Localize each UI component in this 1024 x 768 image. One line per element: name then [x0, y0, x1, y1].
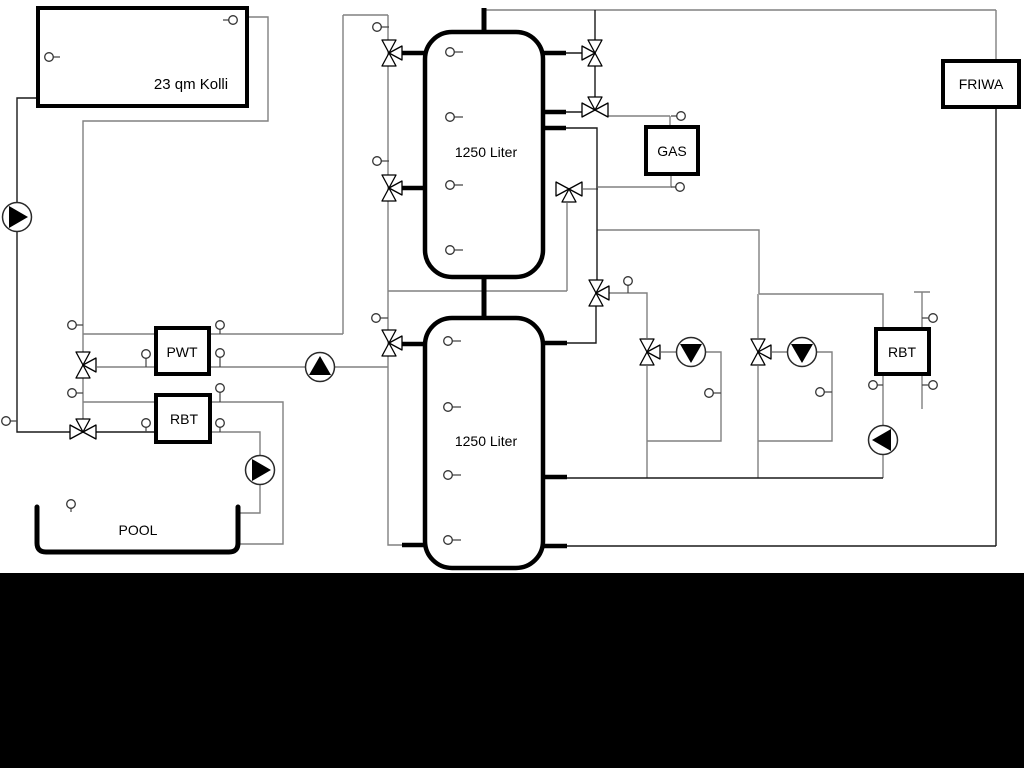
footer-black-band — [0, 573, 1024, 768]
heating-circuit2-pump-icon — [788, 338, 817, 367]
temp-sensor-icon — [372, 314, 381, 323]
friwa-label: FRIWA — [959, 76, 1004, 92]
temp-sensor-icon — [68, 321, 77, 330]
temp-sensor-icon — [444, 536, 453, 545]
temp-sensor-icon — [446, 48, 455, 57]
temp-sensor-icon — [705, 389, 714, 398]
temp-sensor-icon — [216, 321, 225, 330]
gas-boiler-label: GAS — [657, 143, 687, 159]
temp-sensor-icon — [446, 181, 455, 190]
temp-sensor-icon — [676, 183, 685, 192]
pwt-charge-pump-icon — [306, 353, 335, 382]
temp-sensor-icon — [68, 389, 77, 398]
pool-label: POOL — [119, 522, 158, 538]
temp-sensor-icon — [45, 53, 54, 62]
temp-sensor-icon — [446, 113, 455, 122]
temp-sensor-icon — [229, 16, 238, 25]
rbt-left-label: RBT — [170, 411, 198, 427]
temp-sensor-icon — [373, 157, 382, 166]
temp-sensor-icon — [216, 384, 225, 393]
heating-circuit1-pump-icon — [677, 338, 706, 367]
temp-sensor-icon — [816, 388, 825, 397]
collector-label: 23 qm Kolli — [154, 76, 228, 93]
temp-sensor-icon — [446, 246, 455, 255]
temp-sensor-icon — [444, 337, 453, 346]
temp-sensor-icon — [216, 349, 225, 358]
solar-pump-icon — [3, 203, 32, 232]
temp-sensor-icon — [67, 500, 76, 509]
temp-sensor-icon — [142, 419, 151, 428]
temp-sensor-icon — [216, 419, 225, 428]
temp-sensor-icon — [444, 471, 453, 480]
temp-sensor-icon — [624, 277, 633, 286]
temp-sensor-icon — [677, 112, 686, 121]
temp-sensor-icon — [869, 381, 878, 390]
hydraulic-diagram-canvas: 23 qm Kolli 1250 Liter 1250 Liter GAS FR… — [0, 0, 1024, 768]
rbt-right-label: RBT — [888, 344, 916, 360]
temp-sensor-icon — [2, 417, 11, 426]
rbt-circuit-pump-icon — [869, 426, 898, 455]
pwt-label: PWT — [166, 344, 198, 360]
pool-pump-icon — [246, 456, 275, 485]
temp-sensor-icon — [373, 23, 382, 32]
schematic-page: 23 qm Kolli 1250 Liter 1250 Liter GAS FR… — [0, 0, 1024, 768]
tank2-label: 1250 Liter — [455, 433, 518, 449]
temp-sensor-icon — [444, 403, 453, 412]
tank1-label: 1250 Liter — [455, 144, 518, 160]
temp-sensor-icon — [142, 350, 151, 359]
temp-sensor-icon — [929, 314, 938, 323]
temp-sensor-icon — [929, 381, 938, 390]
